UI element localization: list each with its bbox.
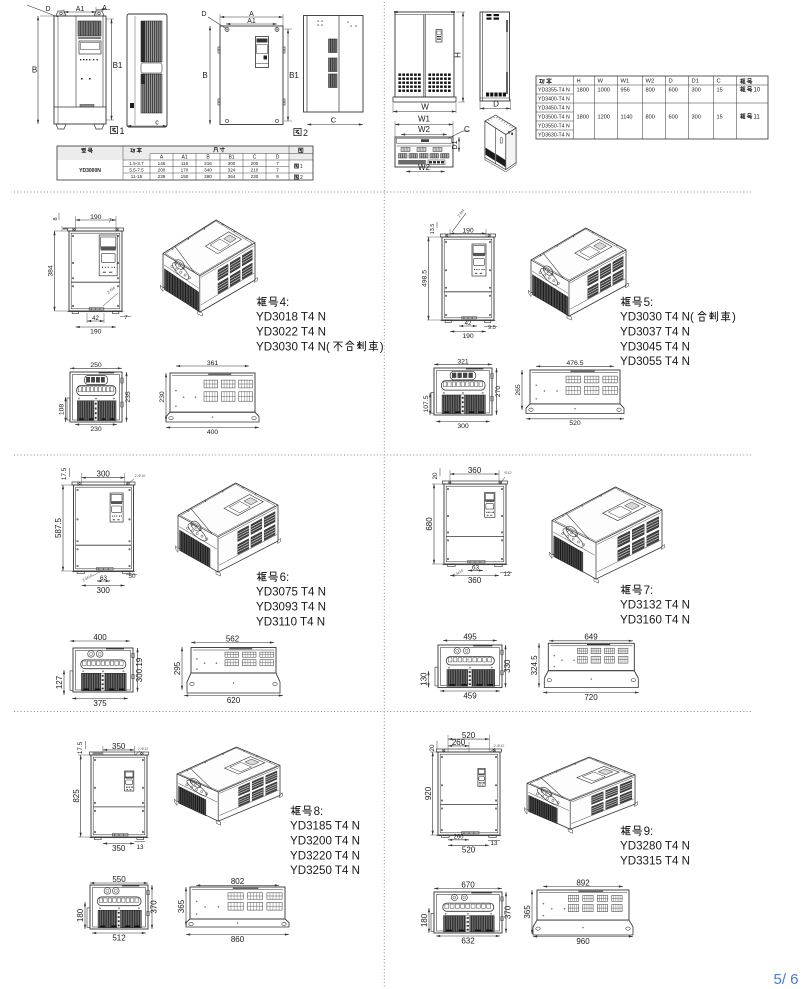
svg-text:42: 42 (92, 316, 99, 322)
svg-text:17.5: 17.5 (77, 741, 84, 754)
svg-text:5:: 5: (644, 296, 654, 309)
svg-text:7: 7 (124, 315, 127, 321)
svg-text:260: 260 (452, 738, 466, 747)
svg-text:1200: 1200 (598, 114, 610, 120)
svg-text:295: 295 (173, 661, 182, 675)
svg-text:YD3030 T4 N(: YD3030 T4 N( (256, 340, 330, 353)
svg-text:520: 520 (569, 420, 581, 427)
svg-text:1140: 1140 (621, 114, 633, 120)
svg-text:63: 63 (472, 564, 480, 571)
svg-text:370: 370 (149, 900, 158, 914)
svg-text:190: 190 (462, 227, 474, 234)
svg-text:130: 130 (420, 672, 429, 686)
svg-text:365: 365 (523, 905, 532, 919)
svg-text:YD3630-T4 N: YD3630-T4 N (538, 133, 570, 139)
svg-text:190: 190 (90, 214, 102, 221)
svg-text:YD3037 T4 N: YD3037 T4 N (620, 326, 690, 339)
svg-text:1: 1 (300, 164, 303, 170)
svg-text:B1: B1 (228, 155, 234, 161)
svg-text:B1: B1 (113, 61, 123, 70)
svg-text:D1: D1 (692, 78, 699, 84)
svg-text:649: 649 (584, 633, 598, 642)
svg-text:260: 260 (453, 835, 464, 841)
svg-text:15: 15 (717, 114, 723, 120)
svg-text:9: 9 (276, 174, 279, 179)
svg-text:180: 180 (420, 913, 429, 927)
svg-text:A: A (102, 5, 107, 12)
svg-text:350: 350 (112, 844, 126, 853)
svg-text:YD3315 T4 N: YD3315 T4 N (620, 855, 690, 868)
svg-text:361: 361 (207, 360, 219, 367)
svg-text:C: C (717, 78, 721, 84)
svg-text:2-Φ12: 2-Φ12 (138, 747, 149, 751)
svg-text:D: D (669, 78, 673, 84)
svg-text:YD3355-T4 N: YD3355-T4 N (538, 88, 570, 94)
svg-text:632: 632 (461, 936, 475, 945)
svg-text:7: 7 (108, 219, 111, 225)
svg-text:A1: A1 (247, 18, 256, 25)
svg-text:YD3022 T4 N: YD3022 T4 N (256, 326, 326, 339)
svg-text:239: 239 (158, 174, 166, 179)
svg-text:D: D (276, 155, 280, 161)
svg-text:230: 230 (90, 426, 102, 433)
svg-text:180: 180 (76, 908, 85, 922)
svg-text:7:: 7: (644, 584, 654, 597)
svg-text:4:: 4: (280, 296, 290, 309)
svg-text:360: 360 (468, 576, 482, 585)
svg-text:495: 495 (463, 632, 477, 641)
svg-text:7: 7 (276, 161, 279, 166)
svg-text:W1: W1 (621, 78, 630, 84)
svg-text:265: 265 (515, 384, 522, 396)
svg-text:270: 270 (495, 386, 502, 398)
svg-text:YD3055 T4 N: YD3055 T4 N (620, 355, 690, 368)
svg-text:680: 680 (425, 517, 434, 531)
svg-text:300.19: 300.19 (135, 657, 144, 682)
svg-text:C: C (464, 125, 470, 134)
svg-text:A1: A1 (76, 6, 85, 13)
svg-text:190: 190 (462, 333, 474, 340)
svg-text:H: H (577, 78, 581, 84)
svg-text:300: 300 (97, 586, 111, 595)
svg-text:YD3110 T4 N: YD3110 T4 N (256, 615, 325, 628)
svg-text:384: 384 (48, 265, 55, 277)
svg-text:300: 300 (692, 87, 701, 93)
svg-text:5/ 6: 5/ 6 (773, 971, 798, 988)
svg-text:D: D (201, 11, 206, 18)
svg-text:YD3093 T4 N: YD3093 T4 N (256, 601, 326, 614)
svg-text:150: 150 (181, 174, 189, 179)
svg-text:8: 8 (53, 217, 59, 220)
svg-text:W2: W2 (418, 163, 431, 172)
svg-text:300: 300 (457, 423, 469, 430)
svg-text:13: 13 (136, 844, 144, 851)
svg-text:200: 200 (251, 161, 259, 166)
svg-text:330: 330 (503, 659, 512, 673)
svg-text:365: 365 (177, 899, 186, 913)
svg-text:340: 340 (204, 168, 212, 173)
svg-text:127: 127 (55, 675, 64, 689)
svg-text:476.5: 476.5 (566, 360, 583, 367)
svg-text:116: 116 (181, 161, 189, 166)
svg-text:146: 146 (158, 161, 166, 166)
svg-text:324: 324 (228, 168, 236, 173)
svg-text:300: 300 (692, 114, 701, 120)
svg-text:B: B (32, 66, 37, 75)
svg-text:H: H (454, 52, 463, 58)
svg-text:1.5-3.7: 1.5-3.7 (129, 161, 144, 166)
svg-text:YD3185 T4 N: YD3185 T4 N (290, 820, 360, 833)
svg-text:10: 10 (754, 88, 761, 94)
svg-text:520: 520 (462, 846, 476, 855)
svg-text:12: 12 (503, 571, 511, 578)
svg-text:20: 20 (429, 744, 436, 752)
svg-text:316: 316 (204, 161, 212, 166)
svg-text:YD3132 T4 N: YD3132 T4 N (620, 599, 690, 612)
svg-text:1000: 1000 (598, 87, 610, 93)
svg-text:c: c (155, 120, 159, 127)
svg-text:YD3550-T4 N: YD3550-T4 N (538, 124, 570, 130)
svg-text:620: 620 (227, 696, 241, 705)
svg-text:20: 20 (432, 472, 439, 480)
svg-text:390: 390 (204, 174, 212, 179)
svg-text:300: 300 (97, 470, 111, 479)
svg-text:2: 2 (300, 175, 303, 181)
svg-text:13: 13 (490, 840, 498, 847)
svg-text:370: 370 (503, 905, 512, 919)
svg-text:YD3200 T4 N: YD3200 T4 N (290, 835, 360, 848)
svg-text:230: 230 (159, 391, 166, 403)
svg-text:375: 375 (93, 699, 107, 708)
svg-text:720: 720 (584, 693, 598, 702)
svg-text:235: 235 (125, 391, 132, 403)
svg-text:321: 321 (457, 358, 469, 365)
svg-text:459: 459 (463, 691, 477, 700)
svg-text:2: 2 (303, 128, 308, 138)
svg-text:A: A (249, 11, 254, 18)
svg-text:600: 600 (669, 114, 678, 120)
svg-text:YD3160 T4 N: YD3160 T4 N (620, 614, 690, 627)
svg-text:9:: 9: (644, 825, 654, 838)
svg-text:108: 108 (59, 404, 66, 416)
svg-text:B1: B1 (289, 71, 299, 80)
svg-text:Φ12: Φ12 (504, 471, 511, 475)
svg-text:230: 230 (251, 174, 259, 179)
svg-text:D: D (45, 6, 50, 13)
svg-text:7: 7 (276, 168, 279, 173)
svg-text:860: 860 (231, 935, 245, 944)
svg-text:YD3450-T4 N: YD3450-T4 N (538, 106, 570, 112)
svg-text:670: 670 (461, 880, 475, 889)
svg-text:170: 170 (181, 168, 189, 173)
svg-text:6:: 6: (280, 571, 290, 584)
svg-text:11-15: 11-15 (131, 174, 143, 179)
svg-text:W: W (598, 78, 604, 84)
svg-text:802: 802 (231, 877, 245, 886)
svg-text:324.5: 324.5 (530, 655, 539, 676)
svg-text:A1: A1 (181, 155, 187, 161)
svg-text:YD3018 T4 N: YD3018 T4 N (256, 311, 326, 324)
svg-text:2-Φ12: 2-Φ12 (494, 744, 505, 748)
svg-text:): ) (732, 311, 736, 324)
svg-text:YD3500-T4 N: YD3500-T4 N (538, 115, 570, 121)
svg-text:YD3280 T4 N: YD3280 T4 N (620, 840, 690, 853)
svg-text:8:: 8: (314, 805, 324, 818)
svg-text:W2: W2 (418, 125, 431, 134)
svg-text:512: 512 (112, 933, 126, 942)
svg-text:550: 550 (112, 875, 126, 884)
svg-text:W2: W2 (646, 78, 655, 84)
svg-text:YD3000N: YD3000N (79, 168, 101, 174)
svg-text:562: 562 (226, 634, 240, 643)
svg-text:400: 400 (207, 429, 219, 436)
svg-text:C: C (331, 116, 337, 125)
svg-text:42: 42 (465, 321, 472, 327)
svg-text:190: 190 (90, 328, 102, 335)
svg-text:250: 250 (90, 362, 102, 369)
svg-text:892: 892 (576, 878, 590, 887)
svg-text:210: 210 (251, 168, 259, 173)
svg-text:YD3250 T4 N: YD3250 T4 N (290, 864, 360, 877)
svg-text:920: 920 (424, 786, 433, 800)
svg-text:YD3045 T4 N: YD3045 T4 N (620, 340, 690, 353)
svg-text:200: 200 (158, 168, 166, 173)
svg-text:107.5: 107.5 (423, 395, 430, 412)
svg-text:B: B (202, 71, 207, 80)
svg-text:587.5: 587.5 (54, 517, 63, 538)
svg-text:15: 15 (717, 87, 723, 93)
svg-text:360: 360 (468, 466, 482, 475)
svg-text:400: 400 (93, 633, 107, 642)
svg-text:1: 1 (120, 126, 125, 136)
svg-text:956: 956 (621, 87, 630, 93)
svg-text:YD3220 T4 N: YD3220 T4 N (290, 849, 360, 862)
svg-text:W: W (421, 103, 429, 112)
svg-text:50: 50 (128, 573, 136, 580)
svg-text:498.5: 498.5 (422, 270, 429, 287)
svg-text:YD3030 T4 N(: YD3030 T4 N( (620, 311, 694, 324)
svg-text:YD3400-T4 N: YD3400-T4 N (538, 97, 570, 103)
svg-text:YD3075 T4 N: YD3075 T4 N (256, 586, 326, 599)
svg-text:1800: 1800 (577, 114, 589, 120)
svg-text:): ) (380, 340, 384, 353)
svg-text:300: 300 (228, 161, 236, 166)
svg-text:W1: W1 (418, 115, 431, 124)
svg-text:11: 11 (754, 115, 761, 121)
svg-text:825: 825 (72, 789, 81, 803)
svg-text:800: 800 (646, 87, 655, 93)
svg-text:364: 364 (228, 174, 236, 179)
svg-text:D: D (493, 100, 499, 109)
svg-text:13.5: 13.5 (430, 224, 436, 235)
svg-text:600: 600 (669, 87, 678, 93)
svg-text:2-Φ10: 2-Φ10 (135, 474, 146, 478)
svg-text:C: C (253, 155, 257, 161)
svg-text:960: 960 (576, 937, 590, 946)
svg-text:350: 350 (112, 742, 126, 751)
svg-text:5.5-7.5: 5.5-7.5 (129, 168, 144, 173)
svg-text:1800: 1800 (577, 87, 589, 93)
svg-text:800: 800 (646, 114, 655, 120)
svg-text:D1: D1 (452, 140, 459, 149)
svg-text:17.5: 17.5 (61, 467, 68, 480)
svg-text:63: 63 (100, 575, 108, 582)
svg-text:9.5: 9.5 (488, 325, 496, 331)
